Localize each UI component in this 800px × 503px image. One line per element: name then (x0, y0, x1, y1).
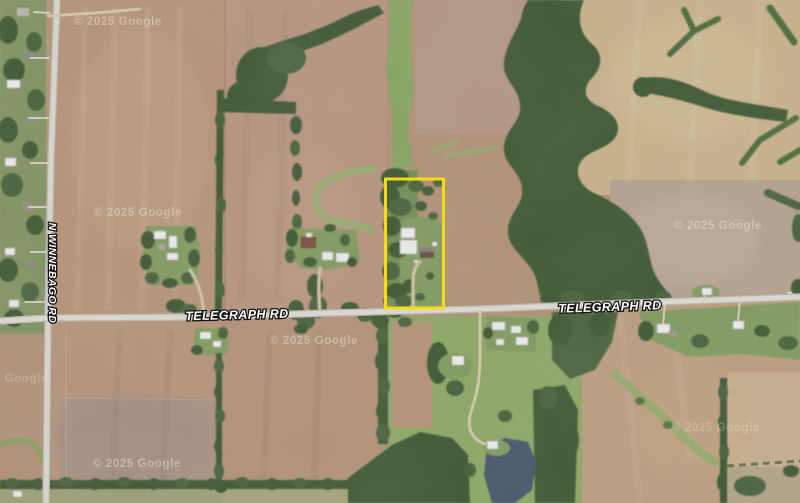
satellite-map-canvas[interactable]: © 2025 Google © 2025 Google © 2025 Googl… (0, 0, 800, 503)
watermark-leftedge-partial: © 2025 Google (0, 373, 48, 385)
watermark-center: © 2025 Google (270, 335, 358, 347)
watermark-midleft: © 2025 Google (94, 207, 182, 219)
map-viewport[interactable]: © 2025 Google © 2025 Google © 2025 Googl… (0, 0, 800, 503)
road-label-telegraph-west: TELEGRAPH RD (185, 307, 289, 324)
watermark-bottomright: © 2025 Google (672, 422, 760, 434)
watermark-right: © 2025 Google (674, 220, 762, 232)
road-label-winnebago: N WINNEBAGO RD (46, 223, 58, 324)
watermark-topleft: © 2025 Google (74, 16, 162, 28)
watermark-bottomleft: © 2025 Google (93, 458, 181, 470)
